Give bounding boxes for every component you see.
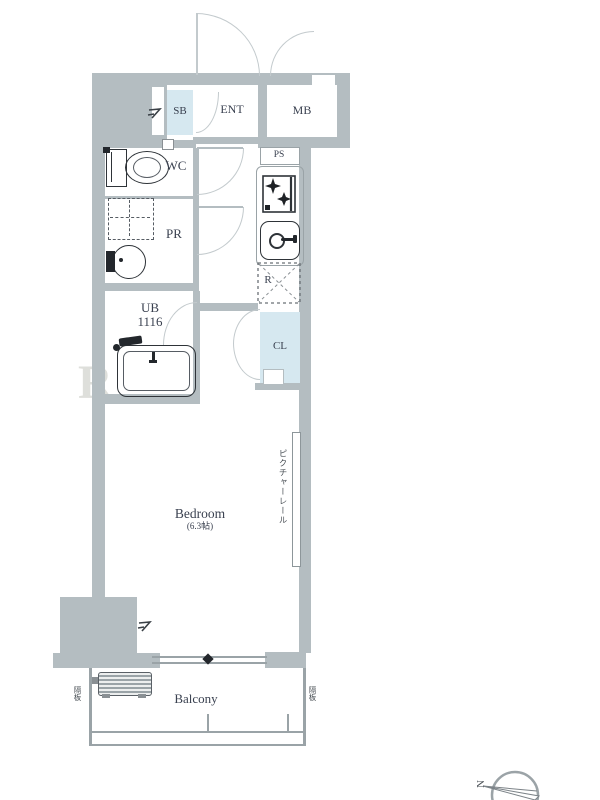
- wall-notch: [312, 75, 335, 85]
- partition-label-left: 隔板: [72, 686, 83, 712]
- label-ub: UB 1116: [120, 301, 180, 330]
- fixture-mark-icon: [137, 618, 153, 634]
- pillar-base: [53, 653, 152, 668]
- bathtub-inner: [123, 351, 190, 391]
- label-balcony: Balcony: [136, 692, 256, 706]
- compass-icon: N: [473, 758, 583, 800]
- wall: [198, 303, 258, 311]
- pr-door-arc: [197, 207, 244, 255]
- washer-pan-divider-v: [129, 200, 130, 236]
- toilet-tank: [106, 149, 127, 187]
- cl-door-arc-bottom: [233, 343, 260, 380]
- balcony-rail: [89, 744, 306, 746]
- picture-rail: [292, 432, 301, 567]
- label-bedroom: Bedroom (6.3帖): [140, 507, 260, 532]
- hall-door-leaf: [197, 147, 243, 149]
- basin-faucet: [119, 258, 123, 262]
- washer-pan-divider-h: [110, 217, 150, 218]
- floor-plan: R: [0, 0, 600, 800]
- label-mb: MB: [267, 104, 337, 117]
- label-r: R: [261, 274, 275, 286]
- label-ub-line2: 1116: [120, 315, 180, 329]
- partition-label-right: 隔板: [307, 686, 318, 712]
- sink-faucet-head: [293, 235, 297, 243]
- label-cl: CL: [260, 340, 300, 352]
- balcony-rail-tick: [207, 714, 209, 732]
- closet-step: [263, 369, 284, 385]
- toilet-valve: [103, 147, 110, 153]
- wash-basin: [112, 245, 146, 279]
- balcony-edge-right: [303, 668, 306, 746]
- ac-unit-foot: [102, 694, 110, 698]
- entrance-door-leaf: [196, 13, 198, 75]
- wall: [105, 283, 193, 291]
- label-pr: PR: [157, 227, 191, 241]
- wall: [265, 652, 306, 668]
- label-bedroom-size: (6.3帖): [140, 522, 260, 532]
- label-ent: ENT: [209, 103, 255, 116]
- stove-icon: [261, 173, 298, 215]
- sink-drain: [269, 233, 285, 249]
- label-ps: PS: [260, 150, 298, 160]
- svg-text:N: N: [475, 780, 487, 788]
- entrance-door-arc: [196, 13, 260, 76]
- toilet-seat: [133, 157, 161, 178]
- basin-counter: [106, 251, 115, 272]
- ac-unit-pipe: [92, 677, 98, 684]
- label-bedroom-name: Bedroom: [140, 507, 260, 522]
- washer-pan: [108, 198, 154, 240]
- fixture-mark-icon: [147, 105, 163, 121]
- toilet-tank-line: [111, 152, 112, 182]
- hall-door-arc: [197, 148, 244, 195]
- balcony-rail: [89, 731, 306, 733]
- vent-box: [162, 139, 174, 150]
- label-sb: SB: [167, 105, 193, 117]
- pr-door-leaf: [197, 206, 243, 208]
- picture-rail-label: ピクチャーレール: [276, 449, 288, 564]
- mb-door-arc: [270, 31, 314, 76]
- wall: [92, 85, 105, 597]
- pillar: [60, 597, 137, 655]
- bath-drain-cap: [149, 360, 157, 363]
- cl-door-arc-top: [233, 309, 260, 344]
- wall: [193, 137, 258, 144]
- bath-knob: [113, 344, 120, 351]
- wall: [258, 85, 267, 137]
- label-ub-line1: UB: [120, 301, 180, 315]
- label-wc: WC: [159, 159, 193, 173]
- balcony-rail-tick: [287, 714, 289, 732]
